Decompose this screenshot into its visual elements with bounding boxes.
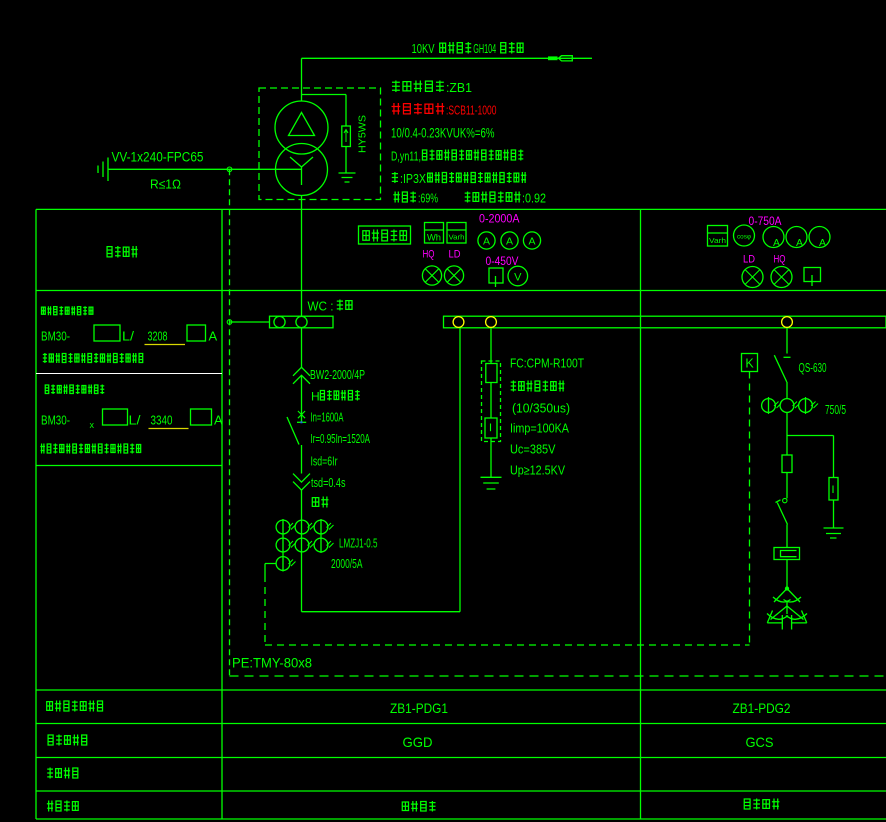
svg-text:FC:CPM-R100T: FC:CPM-R100T — [510, 357, 584, 371]
svg-text::0.92: :0.92 — [522, 192, 546, 206]
svg-text:0-450V: 0-450V — [486, 256, 519, 268]
svg-text:R≤1Ω: R≤1Ω — [150, 177, 181, 192]
svg-text:A: A — [483, 236, 490, 248]
svg-text:HQ: HQ — [423, 249, 435, 261]
svg-text:3208: 3208 — [148, 329, 168, 344]
svg-text:L/: L/ — [129, 413, 141, 428]
svg-text:ZB1-PDG1: ZB1-PDG1 — [390, 700, 448, 716]
svg-text:Ir=0.95In=1520A: Ir=0.95In=1520A — [311, 432, 371, 446]
svg-text:750/5: 750/5 — [825, 403, 846, 417]
svg-text:Varh: Varh — [709, 236, 726, 245]
svg-text:10KV: 10KV — [412, 41, 435, 56]
svg-text:Isd=6Ir: Isd=6Ir — [311, 455, 338, 469]
svg-text:GCS: GCS — [746, 734, 774, 750]
svg-text:A: A — [796, 237, 803, 249]
svg-text::69%: :69% — [418, 192, 438, 206]
svg-text:BM30-: BM30- — [41, 413, 70, 428]
svg-text:H: H — [311, 390, 320, 404]
svg-text:0-2000A: 0-2000A — [479, 214, 520, 226]
svg-text:A: A — [773, 237, 780, 249]
svg-text:In=1600A: In=1600A — [311, 411, 344, 425]
svg-text:A: A — [214, 413, 223, 428]
svg-text:K: K — [745, 357, 754, 371]
svg-text:(10/350us): (10/350us) — [512, 402, 570, 416]
svg-text:A: A — [528, 236, 535, 248]
svg-text:HQ: HQ — [774, 254, 786, 266]
svg-text:10/0.4-0.23KVUK%=6%: 10/0.4-0.23KVUK%=6% — [391, 126, 495, 141]
svg-text:3340: 3340 — [151, 413, 173, 428]
svg-text:VV-1x240-FPC65: VV-1x240-FPC65 — [112, 150, 204, 165]
svg-text:ZB1-PDG2: ZB1-PDG2 — [733, 700, 791, 716]
svg-text:A: A — [819, 237, 826, 249]
svg-text:x: x — [90, 420, 95, 430]
svg-text:LD: LD — [743, 254, 755, 266]
svg-text:L/: L/ — [122, 329, 134, 344]
svg-text:BW2-2000/4P: BW2-2000/4P — [310, 368, 365, 382]
svg-text:Varh: Varh — [449, 233, 465, 242]
svg-text:BM30-: BM30- — [41, 329, 70, 344]
svg-text:Uc=385V: Uc=385V — [510, 443, 556, 457]
svg-text:A: A — [209, 329, 218, 344]
svg-text:GH104: GH104 — [473, 41, 496, 56]
svg-text:tsd=0.4s: tsd=0.4s — [311, 476, 346, 490]
svg-text::ZB1: :ZB1 — [446, 80, 472, 95]
svg-text:GGD: GGD — [403, 734, 433, 750]
svg-text:Up≥12.5KV: Up≥12.5KV — [510, 464, 566, 478]
svg-text:LMZJ1-0.5: LMZJ1-0.5 — [339, 537, 378, 551]
svg-text:D,yn11,: D,yn11, — [391, 149, 421, 164]
svg-text:cosφ: cosφ — [737, 234, 751, 241]
svg-text:LD: LD — [449, 249, 461, 261]
svg-text:QS-630: QS-630 — [799, 361, 827, 375]
svg-text::IP3X: :IP3X — [400, 172, 427, 186]
svg-text::SCB11-1000: :SCB11-1000 — [446, 103, 497, 118]
svg-text:PE:TMY-80x8: PE:TMY-80x8 — [232, 656, 312, 671]
svg-text:A: A — [506, 236, 513, 248]
svg-text:V: V — [514, 272, 522, 284]
svg-text:0-750A: 0-750A — [749, 216, 782, 228]
svg-text:2000/5A: 2000/5A — [331, 557, 363, 571]
svg-text:Wh: Wh — [427, 233, 441, 243]
svg-text:WC :: WC : — [308, 299, 334, 314]
svg-text:Iimp=100KA: Iimp=100KA — [510, 422, 570, 436]
svg-text:HY5WS: HY5WS — [357, 115, 369, 153]
